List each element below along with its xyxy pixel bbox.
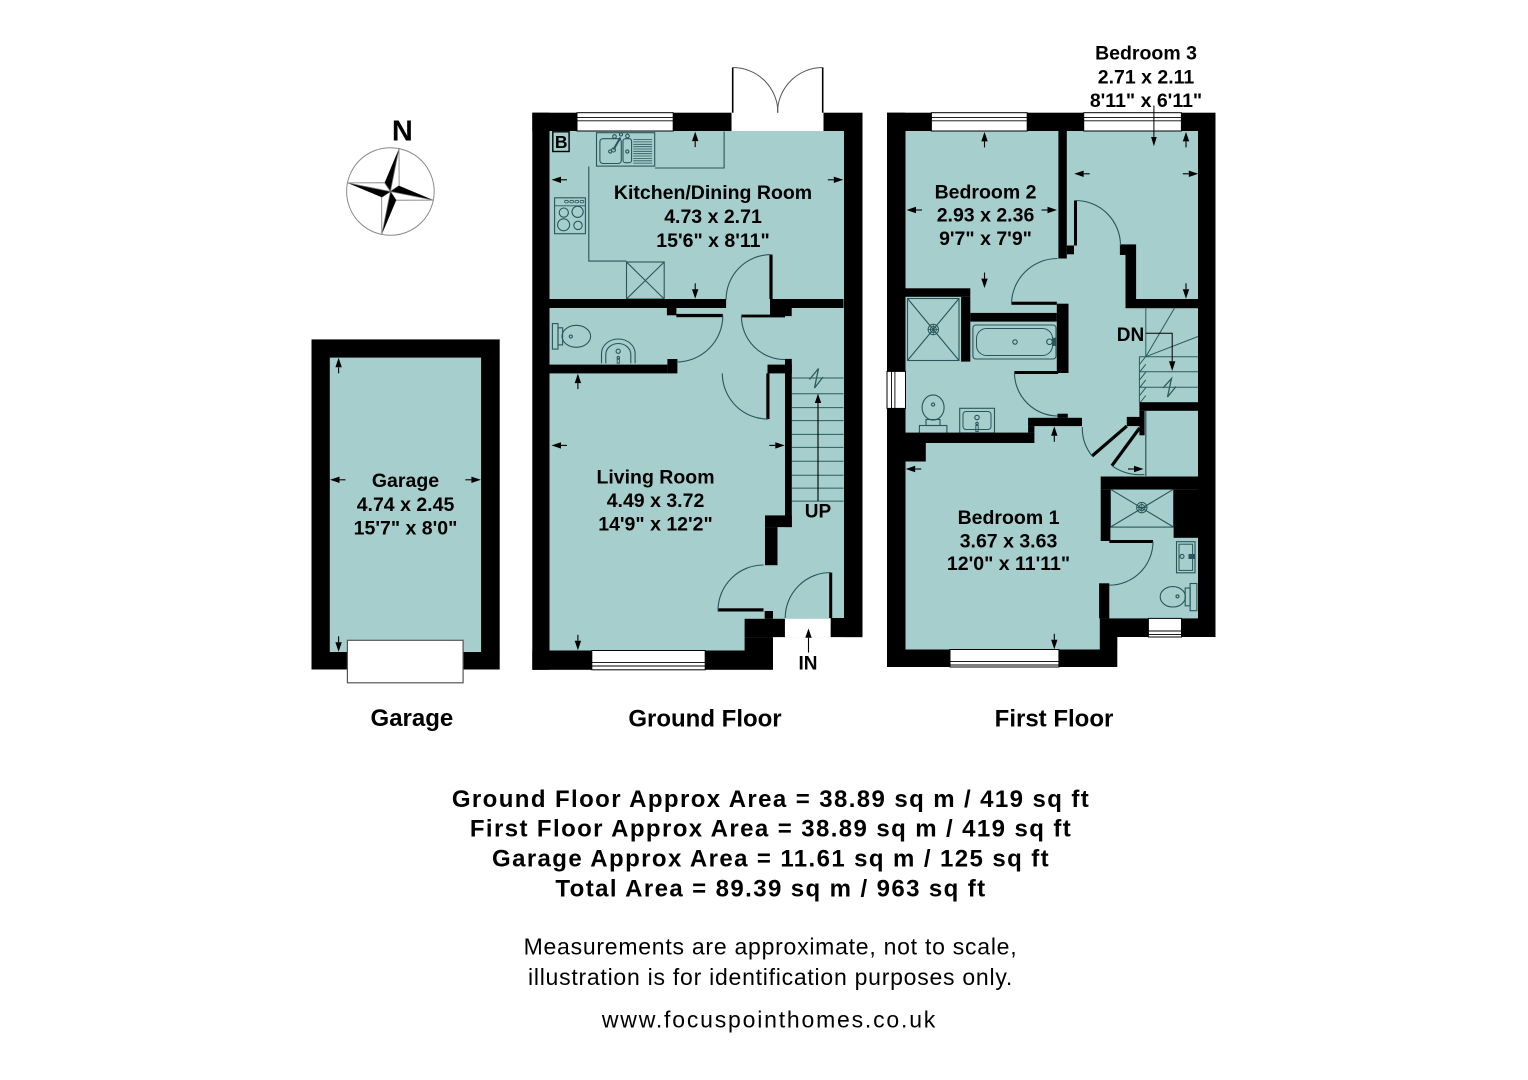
svg-text:First Floor: First Floor — [995, 705, 1114, 732]
svg-text:12'0" x 11'11": 12'0" x 11'11" — [947, 553, 1070, 575]
svg-text:9'7" x 7'9": 9'7" x 7'9" — [939, 228, 1032, 250]
svg-text:UP: UP — [805, 502, 832, 523]
svg-text:15'6" x 8'11": 15'6" x 8'11" — [656, 230, 769, 252]
svg-text:8'11" x 6'11": 8'11" x 6'11" — [1090, 90, 1202, 112]
svg-text:15'7" x 8'0": 15'7" x 8'0" — [354, 518, 458, 540]
svg-text:Garage Approx Area = 11.61 sq: Garage Approx Area = 11.61 sq m / 125 sq… — [492, 845, 1050, 872]
svg-text:Total Area = 89.39 sq m / 963: Total Area = 89.39 sq m / 963 sq ft — [555, 876, 986, 903]
svg-text:illustration is for identifica: illustration is for identification purpo… — [528, 964, 1013, 990]
svg-text:2.93 x 2.36: 2.93 x 2.36 — [937, 205, 1035, 227]
svg-text:Garage: Garage — [371, 705, 454, 732]
svg-text:Ground Floor Approx Area = 38.: Ground Floor Approx Area = 38.89 sq m / … — [452, 786, 1090, 813]
svg-text:IN: IN — [799, 654, 818, 675]
svg-text:4.49 x 3.72: 4.49 x 3.72 — [607, 490, 705, 512]
svg-text:Living Room: Living Room — [596, 467, 714, 489]
svg-text:3.67 x 3.63: 3.67 x 3.63 — [960, 531, 1058, 553]
svg-text:Bedroom 2: Bedroom 2 — [935, 181, 1037, 203]
svg-text:4.74 x 2.45: 4.74 x 2.45 — [357, 494, 455, 516]
svg-text:First Floor Approx Area = 38.8: First Floor Approx Area = 38.89 sq m / 4… — [470, 816, 1072, 843]
svg-text:N: N — [392, 115, 413, 147]
svg-text:Garage: Garage — [372, 470, 439, 492]
svg-text:Bedroom 3: Bedroom 3 — [1095, 43, 1197, 65]
svg-text:2.71 x 2.11: 2.71 x 2.11 — [1098, 67, 1195, 89]
svg-text:14'9" x 12'2": 14'9" x 12'2" — [598, 514, 713, 536]
svg-text:Bedroom 1: Bedroom 1 — [958, 507, 1060, 529]
svg-text:B: B — [555, 132, 568, 152]
svg-text:DN: DN — [1117, 325, 1144, 346]
svg-text:www.focuspointhomes.co.uk: www.focuspointhomes.co.uk — [601, 1007, 937, 1033]
svg-text:Ground Floor: Ground Floor — [628, 705, 781, 732]
svg-text:Kitchen/Dining Room: Kitchen/Dining Room — [614, 182, 812, 204]
svg-text:4.73 x 2.71: 4.73 x 2.71 — [664, 206, 762, 228]
svg-text:Measurements are approximate,: Measurements are approximate, not to sca… — [524, 934, 1018, 960]
